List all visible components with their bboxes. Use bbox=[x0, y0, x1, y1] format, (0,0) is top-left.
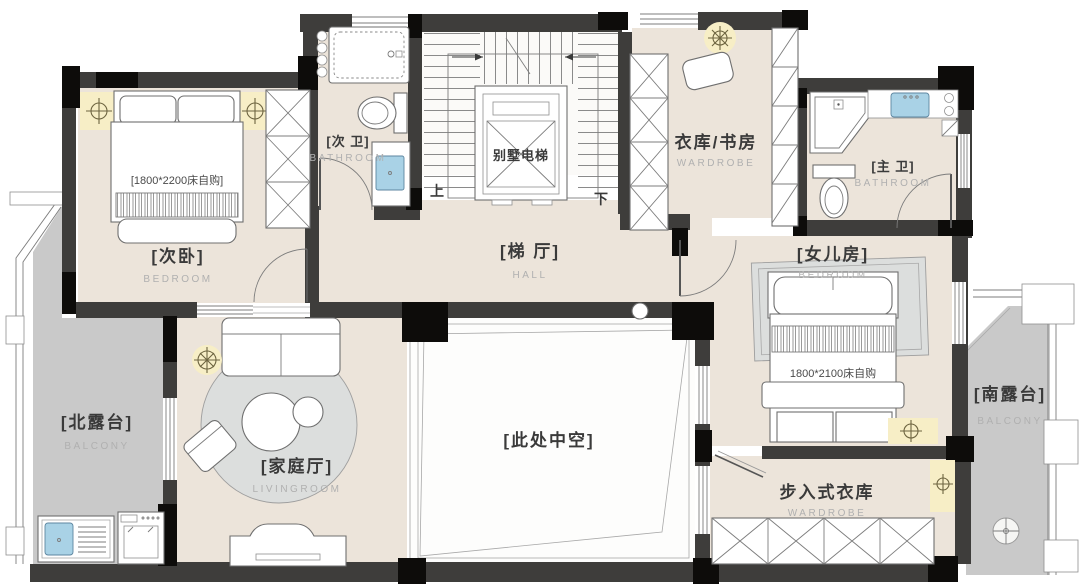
staircase: 别墅电梯 上 下 bbox=[424, 32, 618, 207]
railing-post bbox=[6, 316, 24, 344]
washing-machine bbox=[118, 512, 164, 564]
wardrobe-cabinet bbox=[712, 518, 934, 564]
railing-post bbox=[6, 527, 24, 555]
window bbox=[958, 134, 970, 188]
master-bath-label: [主 卫] bbox=[871, 159, 914, 174]
floor-plan-drawing: 别墅电梯 上 下 [1800*2200床自购] bbox=[0, 0, 1080, 586]
hall-label: [梯 厅] bbox=[500, 241, 560, 261]
daughter-room-label: [女儿房] bbox=[797, 244, 869, 264]
window bbox=[640, 10, 698, 28]
laundry-sink bbox=[38, 516, 114, 562]
railing-post bbox=[1022, 284, 1074, 324]
closet-label: 步入式衣库 bbox=[780, 482, 875, 502]
closet-type: WARDROBE bbox=[788, 508, 867, 519]
window bbox=[253, 303, 310, 317]
round-sink bbox=[945, 107, 954, 116]
wardrobe-cabinet bbox=[630, 54, 668, 230]
window bbox=[952, 282, 966, 344]
bed-size-note: 1800*2100床自购 bbox=[790, 366, 876, 380]
railing-top bbox=[10, 192, 64, 205]
elevator-label: 别墅电梯 bbox=[492, 148, 549, 163]
stairs-down-label: 下 bbox=[594, 191, 608, 207]
window bbox=[695, 466, 710, 534]
living-room-label: [家庭厅] bbox=[261, 456, 333, 476]
bath2-label: [次 卫] bbox=[326, 134, 369, 149]
study-label: 衣库/书房 bbox=[675, 132, 758, 152]
south-balcony-type: BALCONY bbox=[977, 416, 1042, 427]
master-bath-type: BATHROOM bbox=[854, 178, 931, 189]
side-table bbox=[293, 397, 323, 427]
living-room-type: LIVINGROOM bbox=[253, 484, 342, 495]
window bbox=[695, 366, 710, 424]
cabinet-strip bbox=[772, 28, 798, 226]
north-balcony-label: [北露台] bbox=[61, 412, 133, 432]
bed: 1800*2100床自购 bbox=[762, 272, 904, 442]
daughter-room-type: BEDROOM bbox=[798, 270, 867, 281]
south-balcony-label: [南露台] bbox=[974, 384, 1046, 404]
window bbox=[163, 398, 177, 480]
bedroom2-label: [次卧] bbox=[151, 246, 204, 266]
north-balcony-type: BALCONY bbox=[64, 441, 129, 452]
coffee-table bbox=[242, 393, 300, 451]
window bbox=[197, 303, 253, 317]
floor-drain-icon bbox=[993, 518, 1019, 544]
south-balcony bbox=[966, 284, 1078, 575]
wardrobe-cabinet bbox=[266, 90, 310, 228]
floor-plan: 别墅电梯 上 下 [1800*2200床自购] bbox=[0, 0, 1080, 586]
bed-size-note: [1800*2200床自购] bbox=[131, 173, 223, 187]
round-sink bbox=[945, 94, 954, 103]
elevator: 别墅电梯 bbox=[475, 86, 567, 205]
bedroom2-type: BEDROOM bbox=[143, 274, 212, 285]
bed: [1800*2200床自购] bbox=[111, 91, 243, 243]
railing-post bbox=[1044, 420, 1078, 464]
hall-type: HALL bbox=[512, 270, 547, 281]
bathtub bbox=[329, 27, 409, 83]
sofa bbox=[222, 318, 340, 376]
counter-sink bbox=[868, 90, 958, 118]
bath2-type: BATHROOM bbox=[309, 153, 386, 164]
stairs-up-label: 上 bbox=[430, 183, 444, 199]
void-label: [此处中空] bbox=[503, 430, 594, 450]
railing-post bbox=[1044, 540, 1078, 572]
vanity-sink bbox=[372, 142, 410, 206]
column-circle bbox=[632, 303, 648, 319]
study-type: WARDROBE bbox=[677, 158, 756, 169]
